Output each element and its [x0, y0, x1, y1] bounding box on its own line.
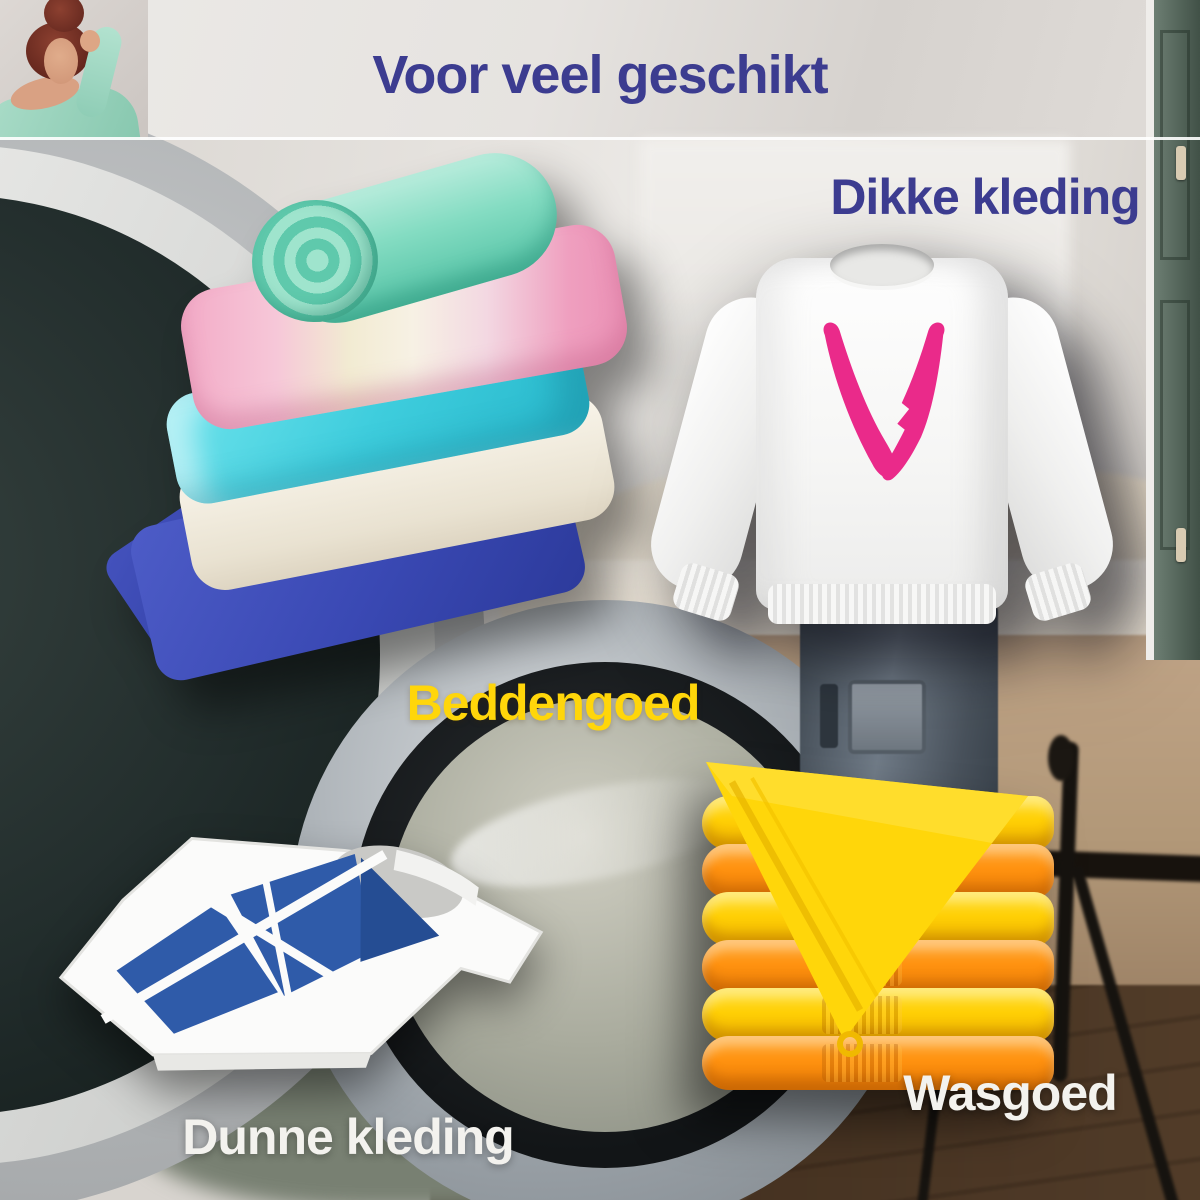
poster-title: Voor veel geschikt — [372, 44, 827, 106]
sweater-neck — [830, 244, 934, 286]
door-handle — [1176, 528, 1186, 562]
label-dunne-kleding: Dunne kleding — [182, 1108, 513, 1166]
draped-washcloth — [692, 748, 1072, 1078]
photo-seam-line — [0, 137, 1200, 140]
towel-stack-image — [692, 748, 1072, 1078]
sweater-image — [672, 232, 1092, 662]
presenter-photo — [0, 0, 148, 140]
door-panel — [1160, 300, 1190, 550]
door-panel — [1160, 30, 1190, 260]
washcloth-loop — [840, 1034, 860, 1054]
label-wasgoed: Wasgoed — [903, 1064, 1116, 1122]
laundry-infographic-poster: Voor veel geschikt Dikke kleding Beddeng… — [0, 0, 1200, 1200]
presenter-hair-bun — [44, 0, 84, 32]
label-dikke-kleding: Dikke kleding — [830, 168, 1139, 226]
door-handle — [1176, 146, 1186, 180]
pink-v-logo — [810, 320, 958, 492]
green-door — [1154, 0, 1200, 660]
door-frame — [1146, 0, 1154, 660]
hinge-plate — [848, 680, 926, 754]
presenter-face — [44, 38, 78, 84]
hinge-slot — [820, 684, 838, 748]
presenter-hand — [80, 30, 100, 52]
sweater-hem — [768, 584, 996, 624]
bedding-stack-image — [120, 160, 640, 700]
label-beddengoed: Beddengoed — [407, 674, 700, 732]
tshirt-image — [30, 795, 570, 1115]
